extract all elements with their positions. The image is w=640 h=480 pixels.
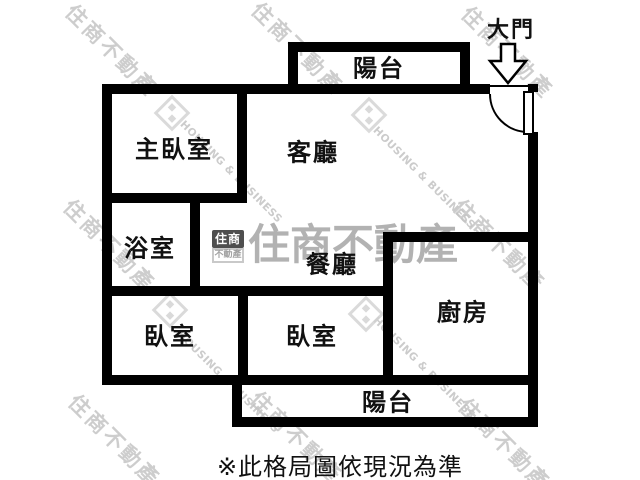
entrance-arrow-icon xyxy=(490,44,526,83)
door-swing-arc xyxy=(490,94,528,132)
door-leaf xyxy=(524,92,533,134)
floor-plan-canvas: 住商不動產 住商不動產 住商不動產 住商不動產 住商不動產 住商不動產 住商不動… xyxy=(0,0,640,480)
door-and-arrow-overlay xyxy=(0,0,640,480)
